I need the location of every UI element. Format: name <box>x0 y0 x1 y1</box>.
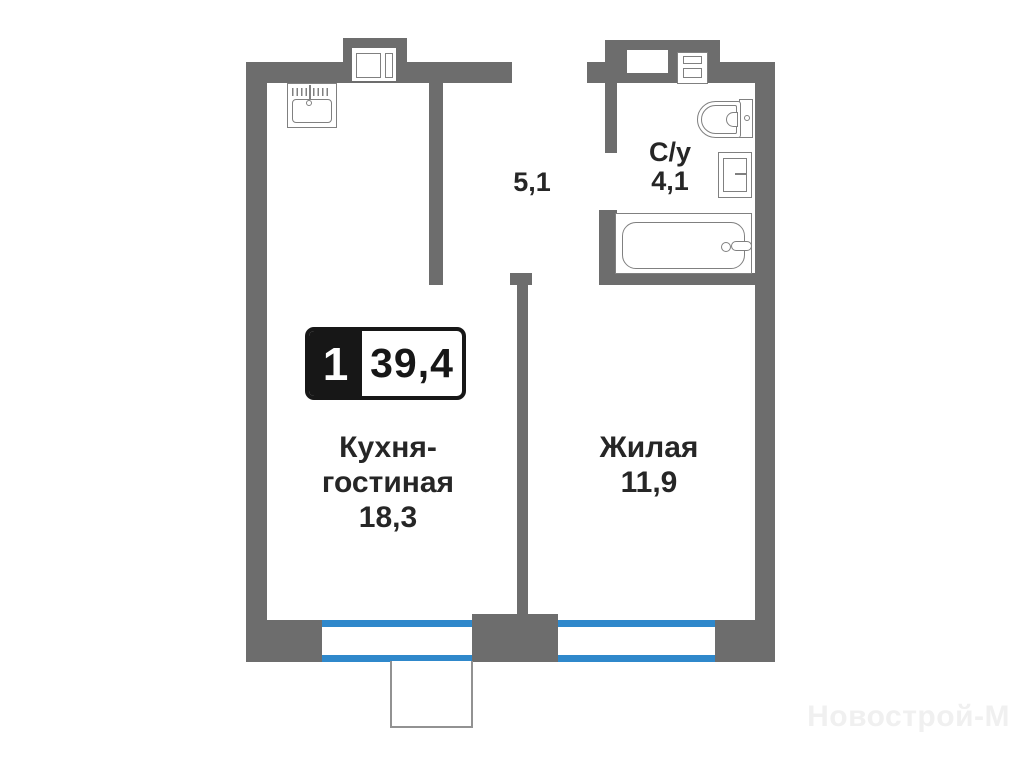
floor-plan: 5,1 С/у 4,1 Кухня-гостиная 18,3 Жилая 11… <box>0 0 1024 768</box>
badge-total-area: 39,4 <box>362 331 462 396</box>
kitchen-sink-drainboard-right <box>313 88 330 96</box>
window-kitchen <box>322 620 472 662</box>
wall-bottom-left-block <box>246 620 322 662</box>
toilet-flush-button <box>744 115 750 121</box>
hallway-area-label: 5,1 <box>492 168 572 197</box>
bathroom-sink-basin <box>723 158 747 192</box>
vent-duct-icon <box>356 53 381 78</box>
vent-box-grille-bottom-icon <box>683 68 702 78</box>
badge-rooms-count: 1 <box>309 331 362 396</box>
wall-mid-divider-cap <box>510 273 532 285</box>
bathroom-label: С/у 4,1 <box>630 138 710 196</box>
wall-top-b <box>407 62 512 83</box>
watermark-text: Новострой-М <box>807 700 1010 734</box>
apartment-badge: 1 39,4 <box>305 327 466 400</box>
kitchen-label: Кухня-гостиная 18,3 <box>303 430 473 535</box>
wall-top-a <box>246 62 343 83</box>
wall-mid-divider <box>517 285 528 620</box>
wall-bottom-right-block <box>715 620 775 662</box>
wall-kitchen-divider <box>429 83 443 285</box>
bathtub-drain <box>721 242 731 252</box>
kitchen-name: Кухня-гостиная <box>303 430 473 500</box>
bathtub-faucet <box>731 241 752 251</box>
bathroom-sink-faucet <box>735 173 747 175</box>
vent-shaft-bathroom-opening <box>627 50 668 73</box>
living-area: 11,9 <box>584 465 714 500</box>
kitchen-faucet-stem <box>309 85 311 99</box>
vent-box-grille-top-icon <box>683 56 702 64</box>
bathroom-name: С/у <box>630 138 710 167</box>
bathroom-area: 4,1 <box>630 167 710 196</box>
kitchen-sink-drainboard-left <box>292 88 307 96</box>
wall-bathroom-bottom <box>599 273 755 285</box>
living-name: Жилая <box>584 430 714 465</box>
kitchen-area: 18,3 <box>303 500 473 535</box>
wall-bathroom-left-upper <box>605 83 617 153</box>
balcony-outline <box>390 661 473 728</box>
living-label: Жилая 11,9 <box>584 430 714 500</box>
wall-right <box>755 62 775 662</box>
toilet-bowl-detail <box>726 112 738 127</box>
kitchen-sink-basin <box>292 99 332 123</box>
vent-duct-slim-icon <box>385 53 393 78</box>
wall-left <box>246 62 267 662</box>
window-living <box>558 620 715 662</box>
wall-bottom-mid-block <box>472 614 558 662</box>
